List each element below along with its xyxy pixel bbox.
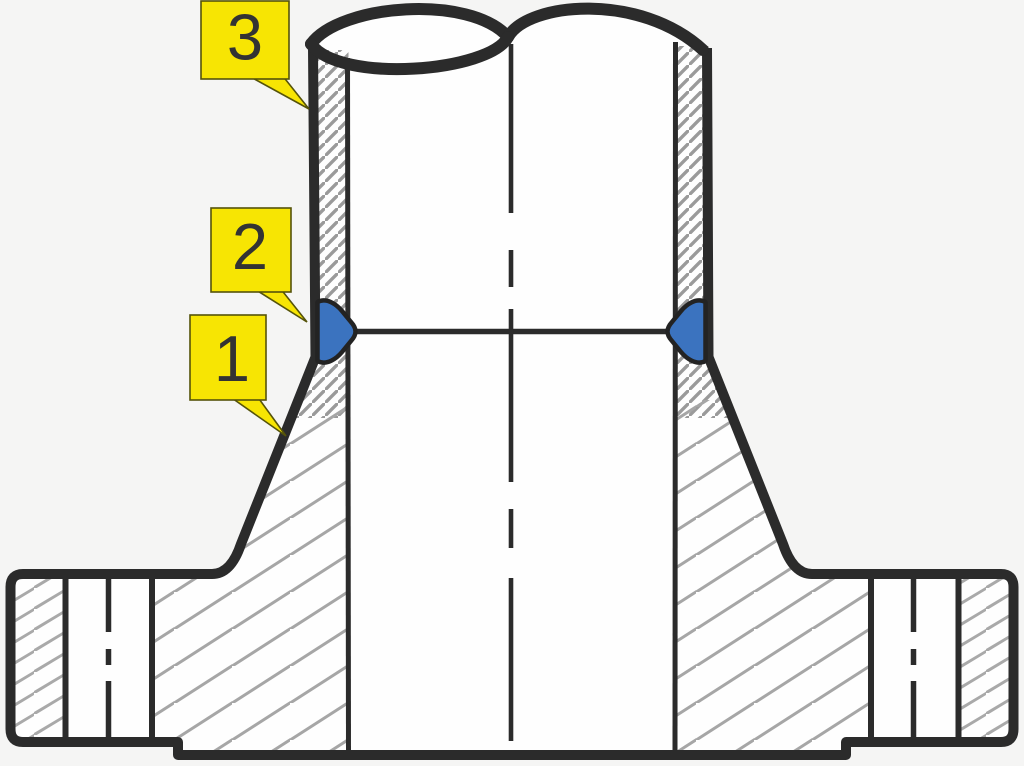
svg-text:3: 3 [227, 1, 263, 74]
svg-text:1: 1 [214, 322, 250, 395]
svg-text:2: 2 [232, 210, 268, 283]
